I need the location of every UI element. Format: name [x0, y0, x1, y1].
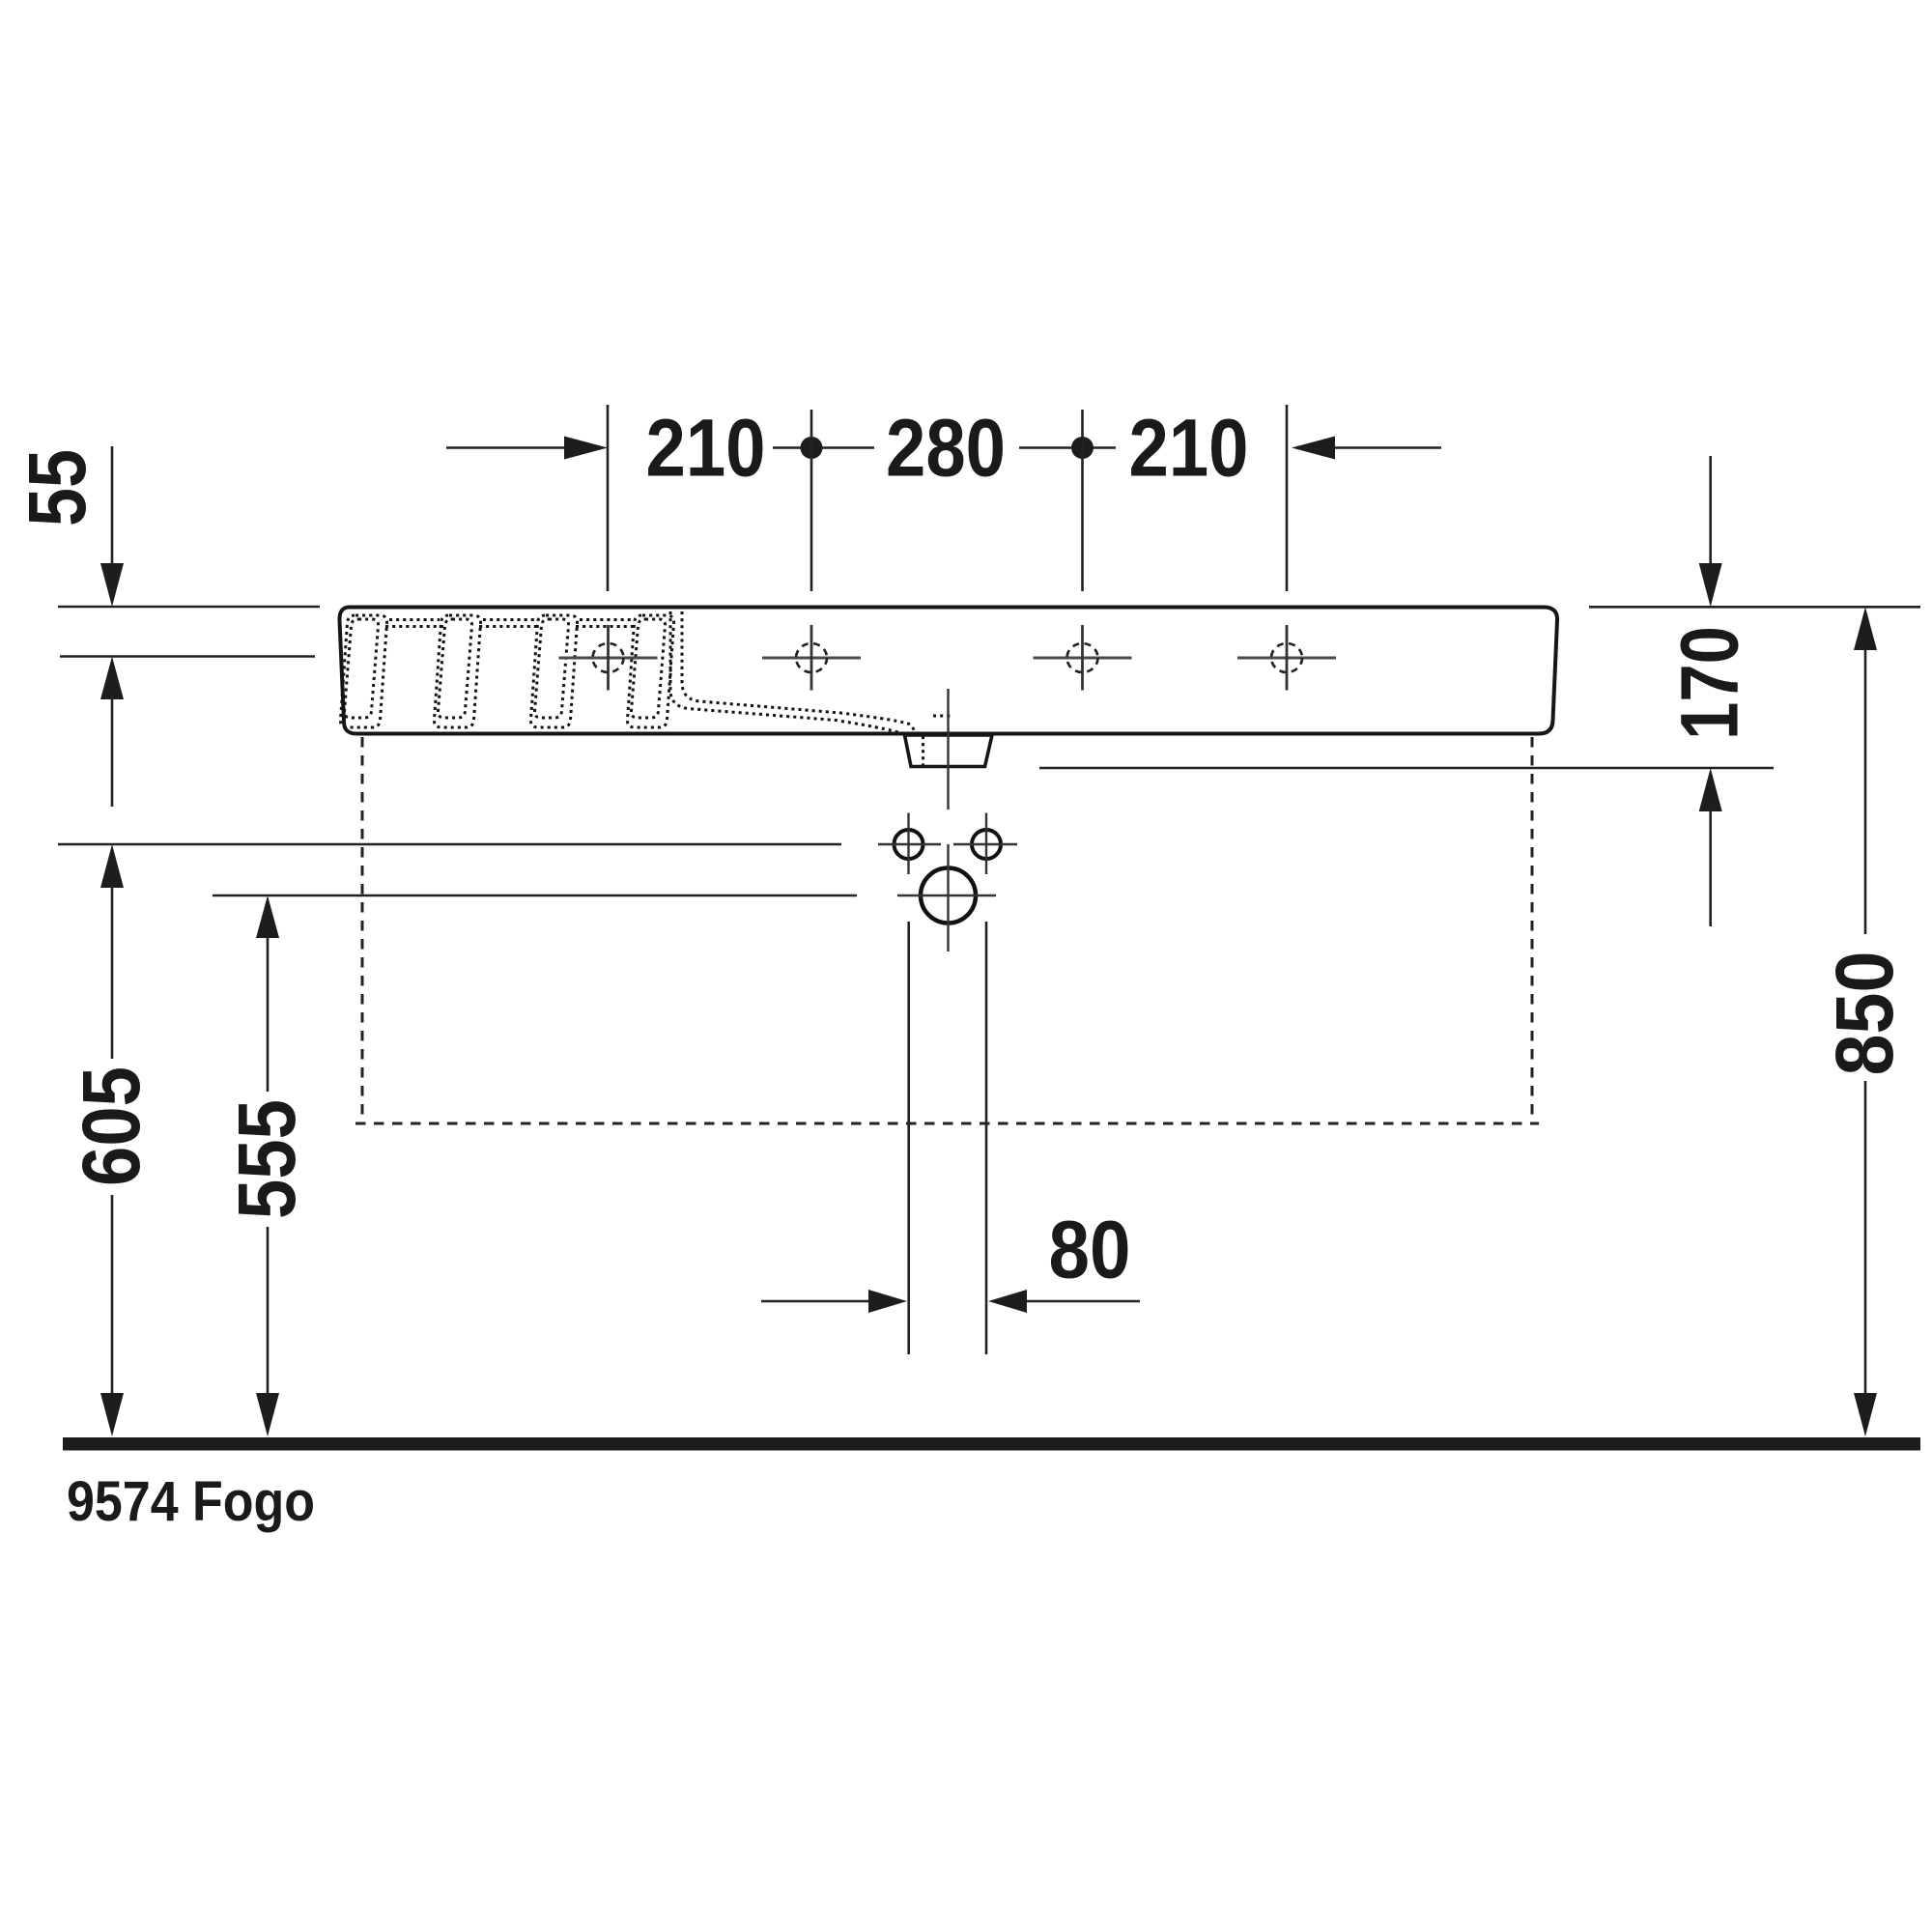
svg-text:170: 170	[1664, 626, 1755, 740]
svg-text:9574 Fogo: 9574 Fogo	[67, 1470, 315, 1533]
svg-text:210: 210	[1129, 403, 1249, 494]
svg-text:280: 280	[886, 403, 1006, 494]
svg-text:210: 210	[646, 403, 766, 494]
svg-text:80: 80	[1049, 1205, 1131, 1295]
svg-text:555: 555	[221, 1099, 312, 1219]
svg-text:55: 55	[12, 449, 102, 526]
svg-text:850: 850	[1819, 952, 1910, 1076]
svg-text:605: 605	[66, 1066, 156, 1186]
